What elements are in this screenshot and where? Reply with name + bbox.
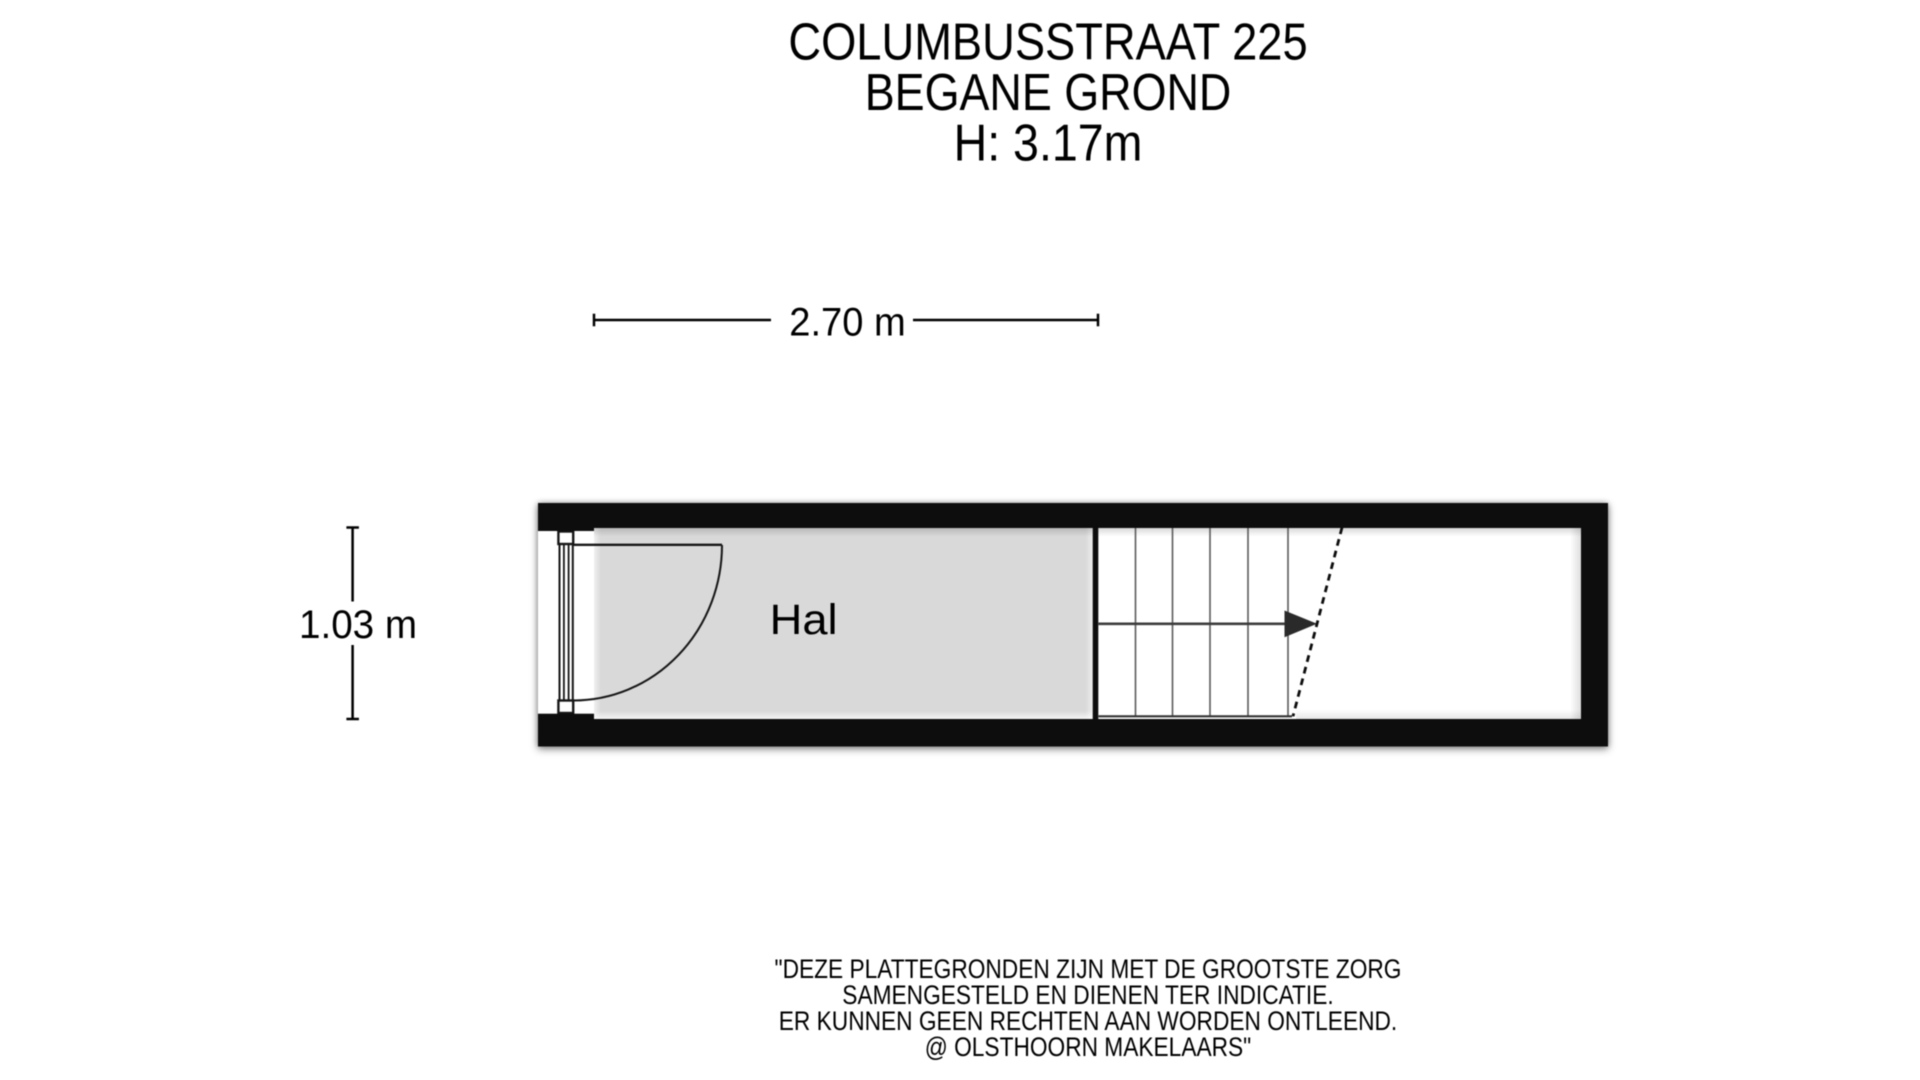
svg-text:1.03 m: 1.03 m	[299, 602, 417, 647]
svg-text:@ OLSTHOORN MAKELAARS": @ OLSTHOORN MAKELAARS"	[925, 1032, 1251, 1062]
svg-text:Hal: Hal	[770, 596, 838, 644]
svg-text:2.70 m: 2.70 m	[789, 300, 905, 344]
svg-text:H: 3.17m: H: 3.17m	[954, 114, 1143, 172]
svg-text:COLUMBUSSTRAAT 225: COLUMBUSSTRAAT 225	[788, 14, 1307, 72]
svg-text:BEGANE GROND: BEGANE GROND	[865, 64, 1232, 122]
